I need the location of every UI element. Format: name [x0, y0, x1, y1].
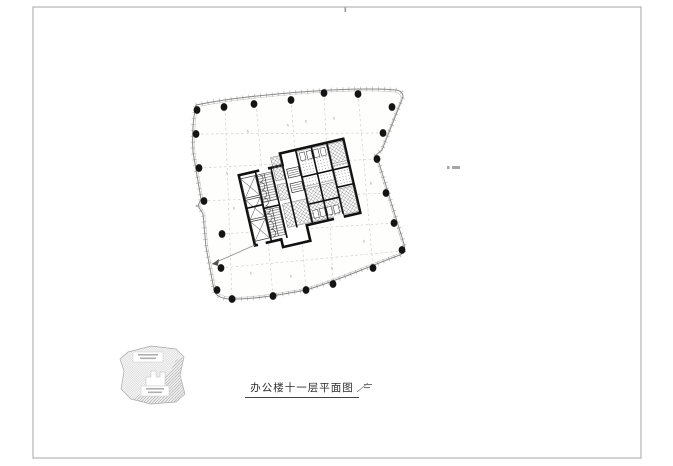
keyplan-label-text [148, 392, 162, 394]
keyplan-label-box [141, 386, 169, 396]
column-dot [383, 189, 390, 197]
column-dot [391, 219, 398, 227]
column-dot [201, 197, 208, 205]
column-dot [196, 164, 203, 172]
column-dot [374, 155, 381, 163]
column-dot [380, 129, 387, 137]
column-dot [214, 286, 221, 294]
column-dot [303, 286, 310, 294]
scale-bar [364, 387, 370, 388]
column-dot [389, 103, 396, 111]
micro-text [447, 166, 450, 169]
column-dot [218, 264, 225, 272]
column-dot [330, 280, 337, 288]
keyplan-label-text [146, 388, 164, 390]
drawing-title: 办公楼十一层平面图 [245, 380, 359, 398]
column-dot [251, 100, 258, 108]
scale-bar [364, 384, 372, 385]
column-dot [229, 295, 236, 303]
column-dot [321, 89, 328, 97]
keyplan-label-text [138, 354, 158, 356]
key-plan [120, 346, 185, 404]
column-dot [221, 103, 228, 111]
keyplan-label-box [133, 352, 163, 362]
keyplan-label-text [140, 358, 156, 360]
fold-tick-mark [345, 8, 347, 13]
title-block: 办公楼十一层平面图 [240, 378, 364, 398]
column-dot [288, 96, 295, 104]
right-micro-annotation [447, 166, 460, 169]
drawing-sheet: 办公楼十一层平面图 [0, 0, 673, 466]
column-dot [219, 230, 226, 238]
column-dot [270, 292, 277, 300]
column-dot [370, 264, 377, 272]
column-dot [193, 130, 200, 138]
micro-text [452, 166, 460, 169]
column-dot [194, 106, 201, 114]
building-plan [193, 89, 406, 303]
column-dot [399, 246, 406, 254]
column-dot [355, 90, 362, 98]
